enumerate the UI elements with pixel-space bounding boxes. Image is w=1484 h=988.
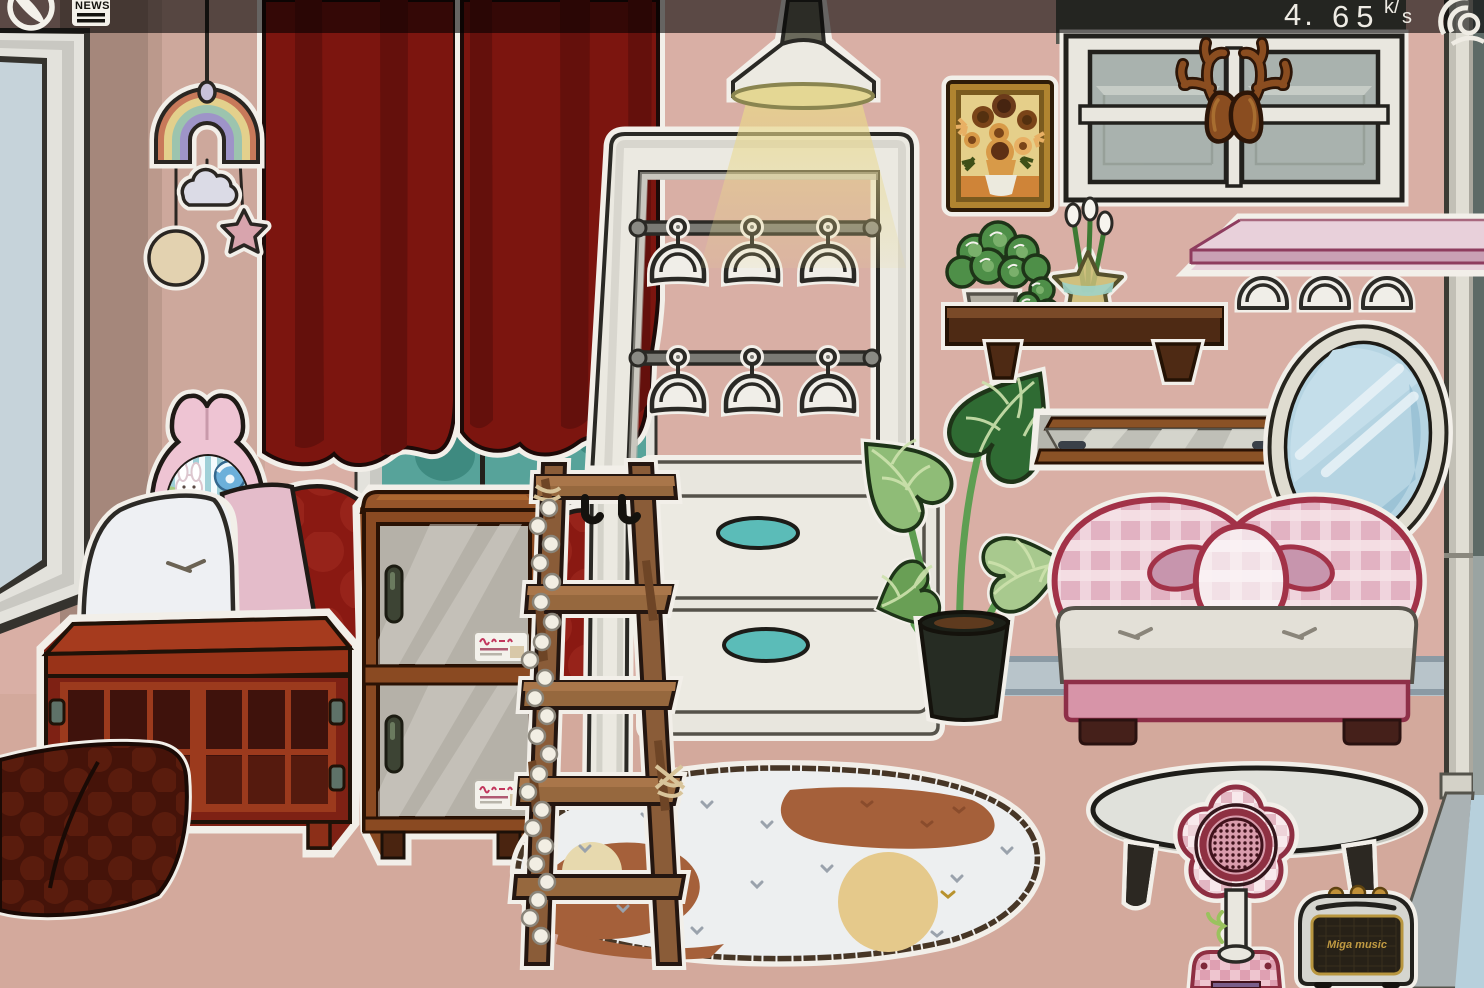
svg-text:Miga music: Miga music bbox=[1327, 939, 1387, 951]
svg-text:4.: 4. bbox=[1284, 0, 1316, 32]
svg-text:65: 65 bbox=[1332, 0, 1380, 34]
svg-text:s: s bbox=[1402, 6, 1412, 28]
svg-text:k/: k/ bbox=[1384, 0, 1400, 18]
svg-text:NEWS: NEWS bbox=[75, 0, 110, 12]
